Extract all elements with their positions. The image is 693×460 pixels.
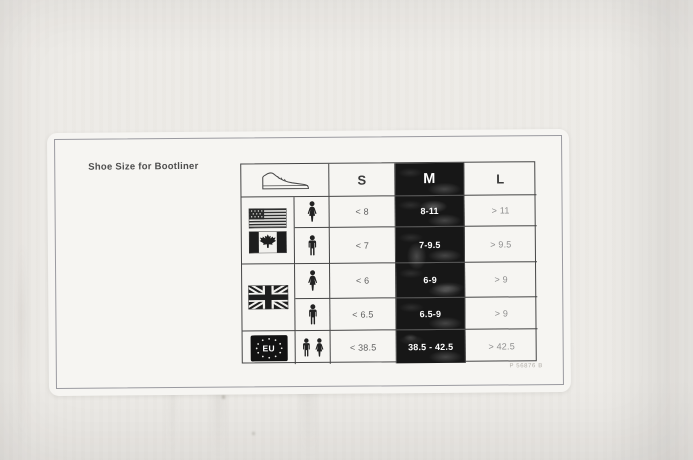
header-shoe-cell xyxy=(241,164,329,198)
size-value-s: < 6.5 xyxy=(330,298,396,331)
gender-cell-men xyxy=(295,299,330,331)
size-value-l: > 9.5 xyxy=(465,226,537,263)
column-header-m: M xyxy=(395,163,464,197)
size-value-s: < 8 xyxy=(329,196,395,228)
size-value-m: 6-9 xyxy=(396,263,465,299)
woman-icon xyxy=(305,201,318,223)
gender-cell-women xyxy=(295,264,330,299)
man-icon xyxy=(306,303,319,325)
gender-pair xyxy=(300,337,325,357)
flags-cell-usa-canada xyxy=(241,197,295,264)
size-value-l: > 11 xyxy=(464,195,536,227)
speck xyxy=(252,432,255,435)
eu-badge-label: EU xyxy=(262,343,275,353)
flags-cell-uk xyxy=(242,264,296,331)
smudge xyxy=(18,240,26,450)
sneaker-icon xyxy=(257,168,313,192)
size-value-s: < 7 xyxy=(330,227,396,264)
woman-icon xyxy=(306,270,319,292)
column-header-l: L xyxy=(464,162,536,196)
size-value-l: > 9 xyxy=(465,297,537,330)
man-icon xyxy=(300,337,312,357)
size-value-m: 8-11 xyxy=(395,196,464,228)
woman-icon xyxy=(314,337,326,357)
size-value-l: > 9 xyxy=(465,262,537,298)
size-label: Shoe Size for Bootliner S M L xyxy=(47,129,571,396)
uk-flag xyxy=(248,285,288,309)
size-value-l: > 42.5 xyxy=(466,329,538,363)
size-value-m: 7-9.5 xyxy=(396,227,465,264)
gender-cell-unisex xyxy=(296,331,331,364)
gender-cell-women xyxy=(294,197,329,228)
size-chart-table: S M L xyxy=(240,161,537,363)
flag-stack xyxy=(249,208,287,253)
label-footer-code: P 56876 B xyxy=(509,363,542,369)
size-value-s: < 38.5 xyxy=(331,330,397,364)
label-title: Shoe Size for Bootliner xyxy=(88,161,198,173)
flags-cell-eu: EU xyxy=(243,331,296,364)
size-value-m: 38.5 - 42.5 xyxy=(397,330,466,364)
speck xyxy=(222,395,225,399)
size-value-m: 6.5-9 xyxy=(396,298,465,331)
gender-cell-men xyxy=(295,228,330,264)
eu-badge: EU xyxy=(250,335,287,361)
box-photo: Shoe Size for Bootliner S M L xyxy=(0,0,693,460)
man-icon xyxy=(305,234,318,256)
column-header-s: S xyxy=(329,163,395,197)
canada-flag xyxy=(249,231,287,253)
size-value-s: < 6 xyxy=(330,263,396,299)
label-border: Shoe Size for Bootliner S M L xyxy=(54,135,564,389)
usa-flag xyxy=(249,208,287,228)
